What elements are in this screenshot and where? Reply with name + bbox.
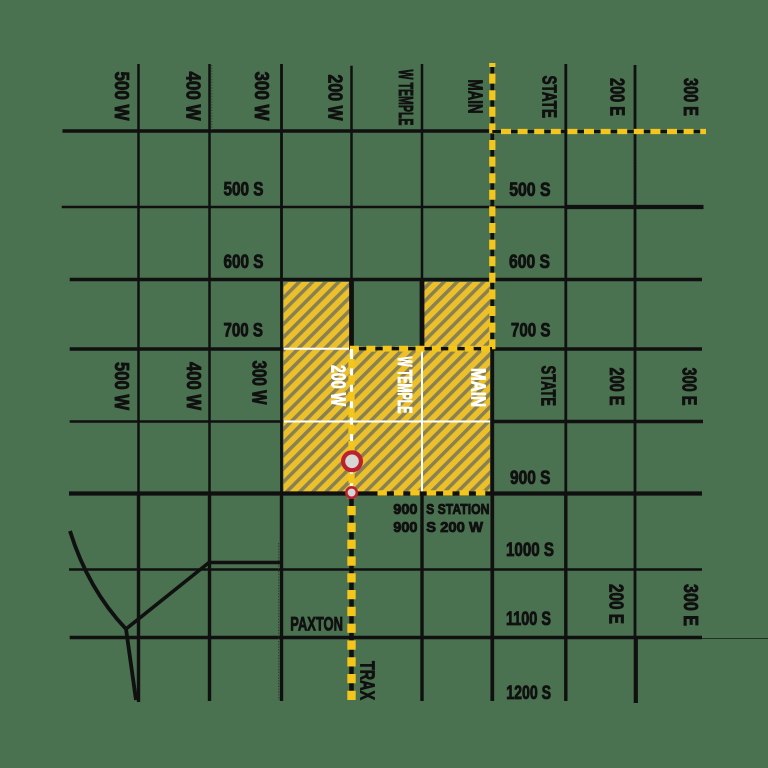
svg-text:300 E: 300 E bbox=[679, 78, 701, 116]
svg-text:900: 900 bbox=[393, 501, 417, 518]
svg-text:900: 900 bbox=[393, 519, 417, 536]
svg-text:900 S: 900 S bbox=[510, 468, 551, 489]
svg-text:200 E: 200 E bbox=[605, 584, 627, 624]
svg-text:S STATION: S STATION bbox=[426, 501, 489, 518]
svg-text:300 E: 300 E bbox=[678, 368, 700, 406]
svg-text:S 200 W: S 200 W bbox=[426, 519, 484, 536]
svg-text:400 W: 400 W bbox=[182, 362, 204, 410]
svg-text:STATE: STATE bbox=[538, 76, 560, 119]
svg-text:STATE: STATE bbox=[537, 366, 559, 407]
svg-text:700 S: 700 S bbox=[224, 321, 264, 342]
svg-text:500 W: 500 W bbox=[110, 362, 132, 410]
svg-text:1000 S: 1000 S bbox=[506, 538, 554, 560]
svg-text:500 S: 500 S bbox=[509, 180, 550, 201]
svg-text:MAIN: MAIN bbox=[464, 80, 486, 114]
svg-text:TRAX: TRAX bbox=[356, 661, 378, 700]
svg-text:200 E: 200 E bbox=[605, 368, 627, 406]
svg-text:W TEMPLE: W TEMPLE bbox=[393, 357, 415, 414]
svg-text:600 S: 600 S bbox=[224, 252, 264, 273]
svg-text:300 E: 300 E bbox=[679, 584, 701, 626]
svg-text:400 W: 400 W bbox=[182, 72, 204, 121]
svg-text:600 S: 600 S bbox=[509, 252, 550, 273]
svg-text:200 W: 200 W bbox=[324, 75, 346, 121]
svg-text:PAXTON: PAXTON bbox=[290, 615, 343, 636]
svg-text:500 W: 500 W bbox=[110, 72, 132, 121]
svg-text:300 W: 300 W bbox=[250, 72, 272, 121]
svg-text:200 W: 200 W bbox=[327, 365, 349, 406]
svg-text:W TEMPLE: W TEMPLE bbox=[394, 70, 416, 126]
svg-text:1200 S: 1200 S bbox=[506, 682, 551, 704]
svg-text:1100 S: 1100 S bbox=[506, 608, 551, 629]
svg-text:500 S: 500 S bbox=[224, 180, 264, 201]
svg-text:MAIN: MAIN bbox=[467, 368, 489, 407]
svg-text:700 S: 700 S bbox=[511, 321, 551, 342]
svg-text:200 E: 200 E bbox=[606, 78, 628, 116]
svg-text:300 W: 300 W bbox=[248, 361, 270, 405]
